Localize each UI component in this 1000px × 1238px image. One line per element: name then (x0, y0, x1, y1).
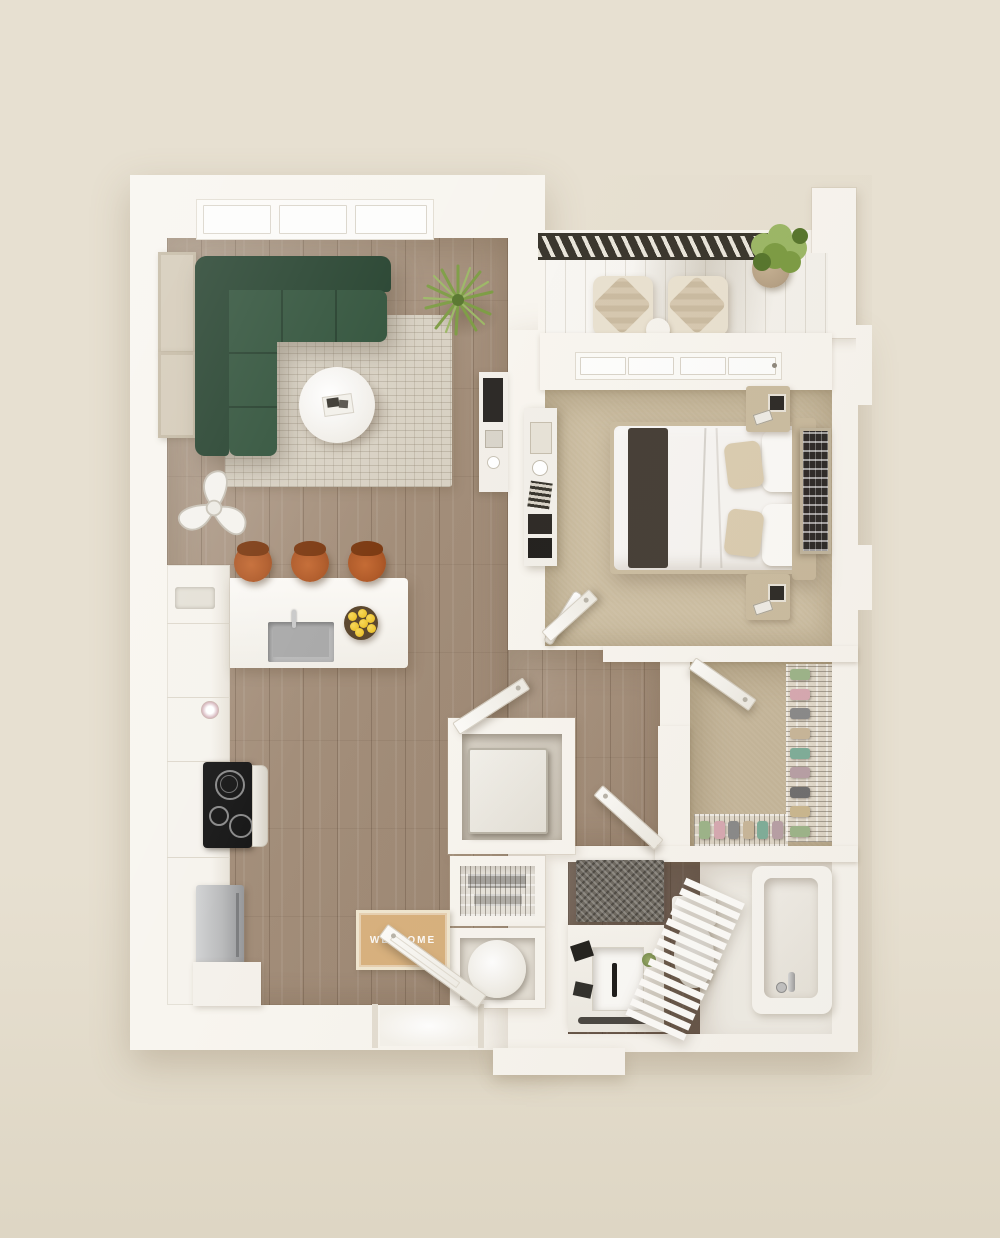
console-tv (483, 378, 503, 422)
shoe-pair (714, 821, 725, 839)
living-media-console (479, 372, 508, 492)
double-bed (610, 418, 816, 580)
bathroom-left-wall (545, 862, 568, 1034)
bedroom-top-wall (540, 333, 832, 390)
bed-pillow-accent (723, 508, 764, 558)
bar-stool-1 (234, 544, 272, 582)
sink-faucet (292, 610, 296, 628)
lemon (355, 628, 364, 637)
shoe-pair (790, 748, 810, 759)
bathroom-top-wall-right (655, 846, 858, 862)
chair-pillow (667, 275, 726, 334)
lounge-chair-left (593, 276, 653, 336)
bed-pillow-accent (723, 440, 764, 490)
window-pane (355, 205, 427, 234)
floor-plan-scene: WELCOME (0, 0, 1000, 1238)
dresser-decor-frame (530, 422, 552, 454)
sink-basin (273, 627, 329, 657)
nightstand-phone (753, 409, 774, 425)
right-wall-bump-upper (856, 325, 872, 405)
shoe-pair (790, 728, 810, 739)
closet-shoe-rack-bottom (694, 814, 788, 846)
nightstand-phone (753, 599, 774, 615)
pantry-interior (460, 866, 535, 916)
entry-door-jamb-right (478, 1004, 484, 1048)
vanity-tray-dark (570, 940, 594, 961)
chair-pillow (592, 275, 651, 334)
open-shelf-glasses (175, 587, 215, 609)
bathtub (752, 866, 832, 1014)
wall-art-frame-upper (158, 252, 196, 354)
bar-stool-2 (291, 544, 329, 582)
nightstand-bottom (746, 574, 790, 620)
dresser-drawer-dark (528, 514, 552, 534)
oven-front (252, 765, 268, 847)
nightstand-frame-decor (768, 584, 786, 602)
cabinet-seam (167, 623, 230, 624)
lemon (348, 612, 357, 621)
shoe-pair (790, 806, 810, 817)
shoe-pair (699, 821, 710, 839)
refrigerator (196, 885, 244, 965)
console-decor (487, 456, 500, 469)
shoe-pair (790, 669, 810, 680)
bedroom-bottom-wall (603, 646, 858, 662)
shoe-pair (757, 821, 768, 839)
window-pane (203, 205, 271, 234)
laundry-closet (448, 718, 575, 854)
shoe-pair (790, 826, 810, 837)
kitchen-sink (268, 622, 334, 662)
shoe-pair (728, 821, 739, 839)
slider-handle (772, 363, 777, 368)
dark-throw-blanket (628, 428, 668, 568)
burner (209, 806, 229, 826)
flower-vase (201, 701, 219, 719)
window-pane (580, 357, 626, 375)
shoe-pair (772, 821, 783, 839)
bar-stool-3 (348, 544, 386, 582)
nightstand-top (746, 386, 790, 432)
balcony-railing (538, 233, 768, 260)
balcony-plant-foliage (742, 218, 812, 282)
window-pane (728, 357, 776, 375)
lounge-chair-right (668, 276, 728, 336)
ceiling-fan (168, 462, 260, 554)
washer-dryer-unit (468, 748, 548, 834)
sofa-seats-chaise (229, 290, 277, 456)
fridge-handle (236, 893, 239, 957)
pantry-closet (450, 856, 545, 926)
lemon (367, 624, 376, 633)
lemon-bowl (344, 606, 378, 640)
bedroom-wall-art (800, 428, 831, 554)
tub-handle (776, 982, 787, 993)
induction-cooktop (203, 762, 252, 848)
shoe-pair (790, 787, 810, 798)
shoe-pair (790, 767, 810, 778)
shoe-pair (790, 708, 810, 719)
living-window-band (196, 199, 434, 240)
nightstand-frame-decor (768, 394, 786, 412)
round-coffee-table (299, 367, 375, 443)
console-decor (485, 430, 503, 448)
bath-rug (576, 860, 664, 922)
entry-door-jamb-left (372, 1004, 378, 1048)
shoe-pair (743, 821, 754, 839)
shoe-pair (790, 689, 810, 700)
sofa-back-left (195, 256, 229, 456)
burner (229, 814, 253, 838)
vanity-tray-dark (573, 981, 594, 998)
window-pane (628, 357, 674, 375)
window-pane (680, 357, 726, 375)
dresser-magazine (527, 481, 552, 510)
cabinet-seam (167, 697, 230, 698)
entry-threshold-glow (380, 1006, 478, 1046)
table-book-dark (326, 397, 339, 408)
vanity-black-faucet (612, 963, 617, 997)
hall-closet-wall (658, 726, 690, 846)
pantry-wire-shelves (460, 866, 535, 916)
kitchen-lower-cabinet (193, 962, 261, 1006)
closet-shoe-rack-right (786, 664, 832, 842)
kitchen-counter-peninsula (230, 578, 408, 668)
bedroom-dresser-console (524, 408, 557, 566)
living-potted-plant (418, 260, 498, 340)
wall-art-frame-lower (158, 352, 196, 438)
table-book-dark (339, 400, 349, 409)
tub-faucet (788, 972, 795, 992)
bedroom-window-band (575, 352, 782, 380)
right-wall-bump-lower (856, 545, 872, 610)
window-pane (279, 205, 347, 234)
burner (220, 775, 238, 793)
dresser-drawer-dark (528, 538, 552, 558)
entry-stoop (493, 1048, 625, 1075)
dresser-decor-round (532, 460, 548, 476)
cabinet-seam (167, 857, 230, 858)
